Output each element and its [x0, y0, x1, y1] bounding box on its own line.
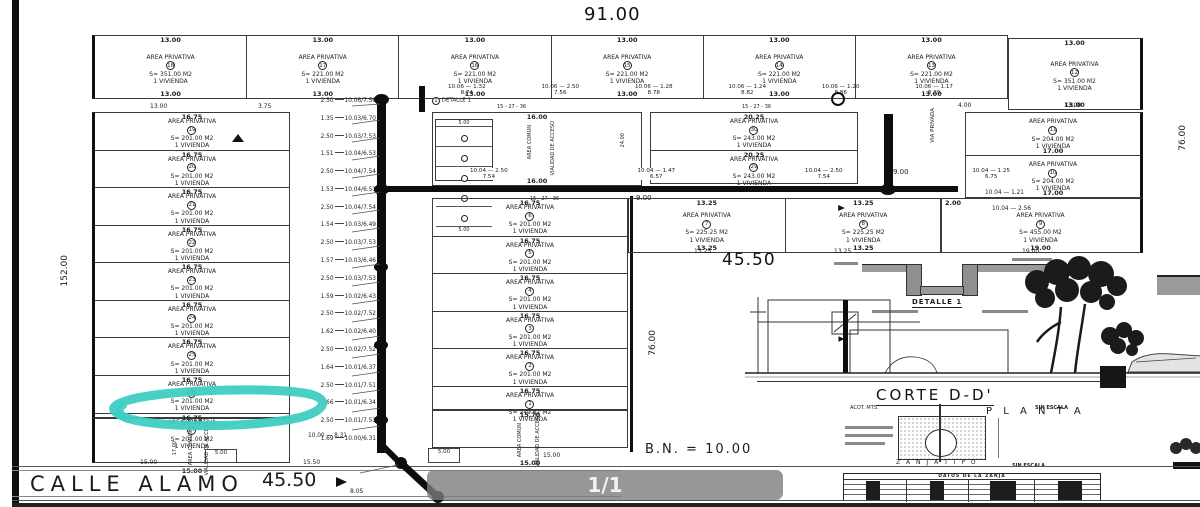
lot: 16.75 AREA PRIVATIVA 19 S= 201.00 M2 1 V… [95, 113, 289, 150]
detail-reference: 1 DETALLE 1 [432, 96, 471, 105]
lot-width-label: 13.00 [247, 36, 398, 44]
lot-number: 17 [318, 61, 327, 70]
zanja-dim-line [998, 418, 999, 458]
lot: 16.75 AREA PRIVATIVA 5 S= 201.00 M2 1 VI… [433, 236, 627, 274]
lot-number: 14 [775, 61, 784, 70]
lot-number: 22 [187, 238, 196, 247]
lot-vivienda-label: 1 VIVIENDA [513, 379, 547, 386]
lot-vertical-label: AREA COMUN [528, 125, 534, 159]
cell [436, 127, 492, 147]
leader-dim: 10.04 — 2.50 7.54 [470, 168, 508, 180]
sub-dim-13: 13.00 [150, 103, 167, 110]
pipe-run-label: 15 - 27 - 36 [497, 104, 526, 110]
lot-width-label: 15.70 [433, 411, 627, 419]
lot: 16.75 AREA PRIVATIVA 4 S= 201.00 M2 1 VI… [433, 273, 627, 311]
lot-vivienda-label: 1 VIVIENDA [306, 78, 340, 85]
lot-area-label: AREA PRIVATIVA [755, 54, 803, 61]
lot: 2.00 AREA PRIVATIVA 9 S= 455.00 M2 1 VIV… [941, 199, 1140, 252]
lot-number: 2 [525, 362, 534, 371]
lot-area-label: AREA PRIVATIVA [683, 212, 731, 219]
lot-width-label: 13.25 [629, 199, 785, 207]
corte-dim-line [757, 381, 1125, 382]
lot-width-label-bottom: 13.25 [786, 244, 942, 252]
zanja-data-table: DATOS DE LA ZANJA [843, 473, 1101, 501]
leader-dim: 10.06 — 1.28 8.78 [635, 84, 673, 96]
street-node [880, 184, 896, 195]
lot-surface: S= 201.00 M2 [509, 371, 552, 378]
lot-area-label: AREA PRIVATIVA [1016, 212, 1064, 219]
lot-surface: S= 455.00 M2 [1019, 229, 1062, 236]
annotation-smudge [845, 426, 893, 429]
street-edge-line [12, 466, 1200, 467]
lot: 16.75 AREA PRIVATIVA 25 S= 201.00 M2 1 V… [95, 337, 289, 375]
lot-area-label: AREA PRIVATIVA [1029, 161, 1077, 168]
lot-width-label: 13.00 [399, 36, 550, 44]
bottom-dim: 8.05 [350, 488, 363, 495]
lot-vivienda-label: 1 VIVIENDA [513, 228, 547, 235]
lot-surface: S= 225.25 M2 [685, 229, 728, 236]
lot-width-label: 16.75 [433, 387, 627, 395]
lot-surface: S= 221.00 M2 [758, 71, 801, 78]
car-partial [1126, 350, 1200, 376]
lot-surface: S= 201.00 M2 [171, 285, 214, 292]
lot-surface: S= 204.00 M2 [1032, 178, 1075, 185]
lot-number: 24 [187, 314, 196, 323]
zanja-centerline [939, 404, 941, 462]
paper-edge-bar [12, 0, 19, 507]
lot-surface: S= 204.00 M2 [1032, 136, 1075, 143]
lot-width-label: 16.75 [95, 226, 289, 234]
lot-width-label: 13.00 [1009, 39, 1140, 47]
lot-number: 13 [927, 61, 936, 70]
lot-area-label: AREA PRIVATIVA [299, 54, 347, 61]
structure-partial [1100, 366, 1126, 388]
center-height-dim: 76.00 [648, 330, 658, 356]
shrub-partial [1166, 436, 1200, 456]
right-lot-column: AREA PRIVATIVA 11 S= 204.00 M2 1 VIVIEND… [965, 112, 1143, 198]
lot-vertical-label: AREA COMUN [518, 423, 524, 457]
lot-vivienda-label: 1 VIVIENDA [175, 255, 209, 262]
lot-number: 7 [702, 220, 711, 229]
lot-number: 5 [525, 249, 534, 258]
lot-number: 25 [187, 351, 196, 360]
lot-number: 21 [187, 201, 196, 210]
lot-number: 6 [525, 212, 534, 221]
lot: 13.00 AREA PRIVATIVA 12 S= 351.00 M2 1 V… [1009, 39, 1140, 109]
dim-13: 13.00 [1064, 102, 1081, 109]
street-dim: 45.50 [262, 469, 316, 491]
lot-surface: S= 243.00 M2 [733, 135, 776, 142]
lot-surface: S= 201.00 M2 [509, 334, 552, 341]
lot-width-label-bottom: 19.00 [941, 244, 1140, 252]
lot-number: 4 [525, 287, 534, 296]
zanja-pipe-circle [925, 429, 957, 457]
lot-vivienda-label: 1 VIVIENDA [175, 218, 209, 225]
street-name: CALLE ALAMO [30, 472, 244, 496]
lot: 16.75 AREA PRIVATIVA 3 S= 201.00 M2 1 VI… [433, 311, 627, 349]
bottom-dim: 15.00 [140, 459, 157, 466]
highlight-annotation [95, 380, 340, 432]
table-col-sep [906, 479, 907, 502]
lot-vivienda-label: 1 VIVIENDA [513, 341, 547, 348]
lot-row-13-25: 13.25 AREA PRIVATIVA 7 S= 225.25 M2 1 VI… [628, 198, 942, 253]
street-tick [419, 86, 425, 112]
lot: 15.70 AREA COMUN VIALIDAD DE ACCESO 15.0… [433, 411, 627, 467]
page-indicator[interactable]: 1/1 [427, 470, 783, 500]
lot-surface: S= 221.00 M2 [910, 71, 953, 78]
lot-vivienda-label: 1 VIVIENDA [513, 304, 547, 311]
blueprint-sheet: 91.00 13.00 AREA PRIVATIVA 18 S= 351.00 … [0, 0, 1200, 507]
lot-surface: S= 201.00 M2 [509, 259, 552, 266]
annotation-smudge [845, 434, 893, 437]
lot-vivienda-label: 1 VIVIENDA [175, 142, 209, 149]
lot-width-label: 16.75 [433, 349, 627, 357]
sub-dim-375: 3.75 [258, 103, 271, 110]
corte-label: CORTE D-D' [876, 386, 994, 406]
lot-number: 12 [1070, 68, 1079, 77]
lot-width-label: 16.75 [433, 237, 627, 245]
lot-width-label: 13.00 [856, 36, 1007, 44]
lot-surface: S= 201.00 M2 [171, 361, 214, 368]
lot-area-label: AREA PRIVATIVA [839, 212, 887, 219]
lot-number: 18 [166, 61, 175, 70]
lot: 13.25 AREA PRIVATIVA 8 S= 225.25 M2 1 VI… [785, 199, 942, 252]
leader-dim: 10.04 — 1.21 [985, 190, 1024, 196]
lot-width-label: 16.75 [95, 113, 289, 121]
acot-note: ACOT. MTS. [850, 406, 879, 412]
corner-lot-12: 13.00 AREA PRIVATIVA 12 S= 351.00 M2 1 V… [1008, 38, 1143, 110]
table-data-block [866, 481, 880, 500]
lot-vivienda-label: 1 VIVIENDA [690, 237, 724, 244]
lot-number: 10 [1048, 169, 1057, 178]
center-lot-column: 16.75 AREA PRIVATIVA 6 S= 201.00 M2 1 VI… [432, 198, 628, 410]
lot-number: 3 [525, 324, 534, 333]
lot-area-label: AREA PRIVATIVA [146, 54, 194, 61]
right-big-lot: 2.00 AREA PRIVATIVA 9 S= 455.00 M2 1 VIV… [940, 198, 1143, 253]
lot-vivienda-label: 1 VIVIENDA [153, 78, 187, 85]
manhole-ring [831, 92, 845, 106]
lot-number: 20 [187, 163, 196, 172]
street-arrow [336, 477, 347, 487]
lot-surface: S= 225.25 M2 [842, 229, 885, 236]
lot-width-label: 16.75 [95, 338, 289, 346]
lot-vivienda-label: 1 VIVIENDA [1023, 237, 1057, 244]
lot-width-label: 13.25 [786, 199, 942, 207]
lot-width-label: 13.00 [704, 36, 855, 44]
lot-width-label: 16.75 [95, 188, 289, 196]
lot-width-label: 13.00 [95, 36, 246, 44]
lot-width-label: 16.75 [433, 199, 627, 207]
via-privada-label: VIA PRIVADA [930, 108, 936, 143]
right-height-dim: 76.00 [1178, 125, 1188, 151]
leader-dim: 10.04 — 1.47 6.57 [637, 168, 675, 180]
lot: 13.00 AREA PRIVATIVA 17 S= 221.00 M2 1 V… [246, 36, 398, 98]
table-data-block [990, 481, 1016, 500]
bottom-dim: 13.25 [694, 248, 711, 255]
center-access-lot: 15.70 AREA COMUN VIALIDAD DE ACCESO 15.0… [432, 410, 628, 448]
lot: 16.75 AREA PRIVATIVA 21 S= 201.00 M2 1 V… [95, 187, 289, 225]
lot-vivienda-label: 1 VIVIENDA [737, 180, 771, 187]
lot-surface: S= 201.00 M2 [171, 323, 214, 330]
lot-width-label: 16.75 [95, 301, 289, 309]
lot: 16.75 AREA PRIVATIVA 6 S= 201.00 M2 1 VI… [433, 199, 627, 236]
lot-surface: S= 201.00 M2 [171, 210, 214, 217]
lot: 16.75 AREA PRIVATIVA 24 S= 201.00 M2 1 V… [95, 300, 289, 338]
lot: 16.75 AREA PRIVATIVA 22 S= 201.00 M2 1 V… [95, 225, 289, 263]
total-width-dim: 91.00 [584, 4, 641, 25]
table-col-sep [968, 479, 969, 502]
lot-number: 16 [470, 61, 479, 70]
lot-number: 23 [187, 276, 196, 285]
lot-side-dim: 24.00 [621, 133, 627, 147]
leader-dims-top: 10.06 — 1.32 8.74 10.06 — 2.50 7.56 10.0… [448, 84, 953, 96]
bottom-dim: 15.00 [543, 452, 560, 459]
lot-width-label-bottom: 13.00 [95, 90, 246, 98]
lot-side-dim: 17.00 [173, 441, 179, 455]
lot-surface: S= 221.00 M2 [301, 71, 344, 78]
lot-vivienda-label: 1 VIVIENDA [846, 237, 880, 244]
bn-note: B.N. = 10.00 [645, 442, 752, 457]
lot-width-label: 13.00 [552, 36, 703, 44]
lot-area-label: AREA PRIVATIVA [603, 54, 651, 61]
lot-number: 30 [749, 126, 758, 135]
lot-number: 9 [1036, 220, 1045, 229]
lot-number: 19 [187, 126, 196, 135]
lot-number: 11 [1048, 126, 1057, 135]
lot-width-label: 16.75 [95, 151, 289, 159]
wall-section-partial [1157, 275, 1200, 295]
pipe-run-label: 15 - 27 - 36 [742, 104, 771, 110]
bottom-edge-bar [12, 503, 1200, 507]
cell [436, 147, 492, 167]
lot: 20.25 AREA PRIVATIVA 30 S= 243.00 M2 1 V… [651, 113, 857, 150]
triangle-marker [232, 134, 244, 142]
lot-surface: S= 201.00 M2 [509, 221, 552, 228]
table-title: DATOS DE LA ZANJA [844, 474, 1100, 480]
lot-width-label: 16.75 [433, 274, 627, 282]
lot-area-label: AREA PRIVATIVA [1050, 61, 1098, 68]
leader-dim: 10.06 — 2.50 7.56 [541, 84, 579, 96]
lot-vivienda-label: 1 VIVIENDA [175, 293, 209, 300]
lot-area-label: AREA PRIVATIVA [907, 54, 955, 61]
lot-vivienda-label: 1 VIVIENDA [175, 180, 209, 187]
lot-width-label: 16.75 [433, 312, 627, 320]
table-col-sep [1034, 479, 1035, 502]
annotation-smudge [845, 442, 885, 445]
cell-dim: 5.00 [436, 120, 492, 127]
leader-dims-mid: 10.04 — 2.50 7.54 10.04 — 1.47 6.57 10.0… [470, 168, 1010, 180]
bottom-dim-box: 5.00 [205, 449, 237, 463]
lot: AREA PRIVATIVA 11 S= 204.00 M2 1 VIVIEND… [966, 113, 1140, 155]
lot-number: 8 [859, 220, 868, 229]
detail-ref-circle: 1 [432, 97, 440, 105]
lot-surface: S= 201.00 M2 [171, 248, 214, 255]
planta-label: P L A N T A [986, 406, 1085, 417]
left-height-dim: 152.00 [60, 255, 70, 287]
leader-dim: 10.06 — 1.17 8.89 [915, 84, 953, 96]
lot-vivienda-label: 1 VIVIENDA [175, 330, 209, 337]
leader-lines [340, 98, 385, 448]
lot-number: 15 [623, 61, 632, 70]
lot-vertical-label: AREA COMUN [189, 431, 195, 465]
lot-width-label: 20.25 [651, 151, 857, 159]
lot-width-label: 16.75 [95, 263, 289, 271]
dim-4: 4.00 [958, 102, 971, 109]
lot-vivienda-label: 1 VIVIENDA [1057, 85, 1091, 92]
lot-width-label-bottom: 17.00 [966, 147, 1140, 155]
lot-area-label: AREA PRIVATIVA [451, 54, 499, 61]
lot: 13.25 AREA PRIVATIVA 7 S= 225.25 M2 1 VI… [629, 199, 785, 252]
lot-surface: S= 201.00 M2 [171, 173, 214, 180]
table-data-block [1058, 481, 1082, 500]
lot-side-dim: 2.00 [941, 199, 1140, 207]
lot: 13.00 AREA PRIVATIVA 18 S= 351.00 M2 1 V… [95, 36, 246, 98]
flow-arrow [838, 205, 845, 211]
left-lot-column: 16.75 AREA PRIVATIVA 19 S= 201.00 M2 1 V… [92, 112, 290, 418]
lot-surface: S= 201.00 M2 [509, 296, 552, 303]
leader-dim: 10.06 — 1.24 8.82 [728, 84, 766, 96]
lot-number: 1 [525, 400, 534, 409]
lot: 16.75 AREA PRIVATIVA 2 S= 201.00 M2 1 VI… [433, 348, 627, 386]
table-data-block [930, 481, 944, 500]
lot: 16.75 AREA PRIVATIVA 20 S= 201.00 M2 1 V… [95, 150, 289, 188]
leader-dim: 10.06 — 1.32 8.74 [448, 84, 486, 96]
lot-width-label: 20.25 [651, 113, 857, 121]
lot-vivienda-label: 1 VIVIENDA [737, 142, 771, 149]
lot-area-label: AREA PRIVATIVA [1029, 118, 1077, 125]
leader-dim: 10.04 — 1.25 6.75 [972, 168, 1010, 180]
leader-dim: 10.04 — 2.56 [992, 206, 1031, 212]
lot: 16.75 AREA PRIVATIVA 23 S= 201.00 M2 1 V… [95, 262, 289, 300]
leader-dim: 10.04 — 2.50 7.54 [805, 168, 843, 180]
lot-surface: S= 221.00 M2 [454, 71, 497, 78]
lot-vivienda-label: 1 VIVIENDA [175, 368, 209, 375]
street-edge-line [12, 500, 1200, 501]
bottom-dim: 15.50 [303, 459, 320, 466]
lot-surface: S= 351.00 M2 [1053, 78, 1096, 85]
lot-surface: S= 201.00 M2 [171, 135, 214, 142]
lot-vivienda-label: 1 VIVIENDA [513, 266, 547, 273]
lot-surface: S= 351.00 M2 [149, 71, 192, 78]
lot-surface: S= 221.00 M2 [606, 71, 649, 78]
